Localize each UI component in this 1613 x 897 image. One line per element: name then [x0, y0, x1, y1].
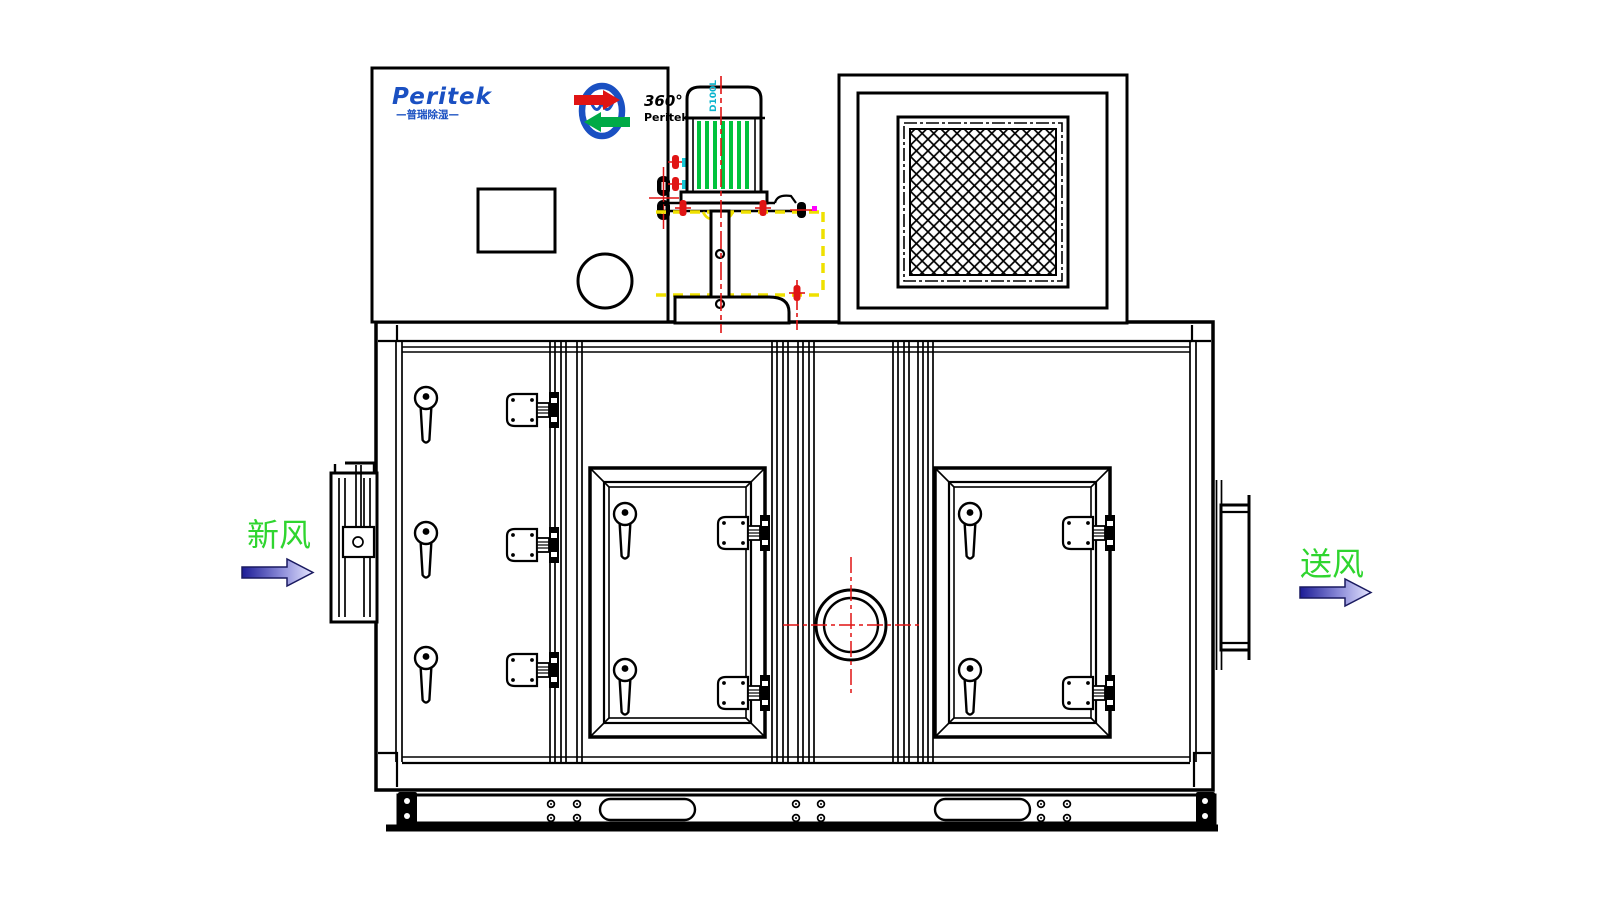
- fresh-air-inlet-assembly: [331, 463, 377, 622]
- base-bracket-right: [1196, 792, 1215, 826]
- motor-top-cap: [687, 87, 761, 118]
- fresh-air-annotation: 新风: [242, 516, 313, 586]
- supply-air-collar: [1217, 480, 1250, 670]
- base-frame: [386, 792, 1218, 828]
- door-latch-icon: [507, 392, 559, 428]
- supply-air-annotation: 送风: [1300, 545, 1371, 606]
- fresh-air-label: 新风: [247, 516, 311, 554]
- wheel-degree-text: 360°: [644, 92, 683, 110]
- door-latch-icon: [507, 527, 559, 563]
- door-latch-icon: [507, 652, 559, 688]
- base-bracket-left: [398, 792, 417, 826]
- brand-logo-text: Peritek: [392, 84, 493, 110]
- mesh-panel: [910, 129, 1056, 275]
- control-cabinet-box: Peritek —普瑞除湿— 360° Peritek: [372, 68, 689, 322]
- motor-base-flange: [681, 192, 767, 203]
- dehumidifier-front-elevation-drawing: Peritek —普瑞除湿— 360° Peritek: [0, 0, 1613, 897]
- base-channel: [398, 795, 1215, 823]
- bracket-bolt: [716, 300, 724, 308]
- door-latch-icon: [1063, 515, 1115, 551]
- door-latch-icon: [1063, 675, 1115, 711]
- door-latch-icon: [718, 675, 770, 711]
- brand-logo-subtext: —普瑞除湿—: [396, 108, 459, 121]
- door-latch-icon: [718, 515, 770, 551]
- supply-air-label: 送风: [1300, 545, 1364, 583]
- wheel-brand-text: Peritek: [644, 111, 689, 124]
- post-bolt: [716, 250, 724, 258]
- cad-drawing-stage: Peritek —普瑞除湿— 360° Peritek: [0, 0, 1613, 897]
- actuator-body: [343, 527, 374, 557]
- motor-support-bracket: [675, 297, 789, 323]
- collar-flange: [1221, 505, 1249, 650]
- motor-model-label: D100L: [709, 80, 719, 112]
- filter-grille-box: [839, 75, 1127, 323]
- magenta-mark: [812, 206, 817, 211]
- motor-cooling-fins: [699, 121, 747, 189]
